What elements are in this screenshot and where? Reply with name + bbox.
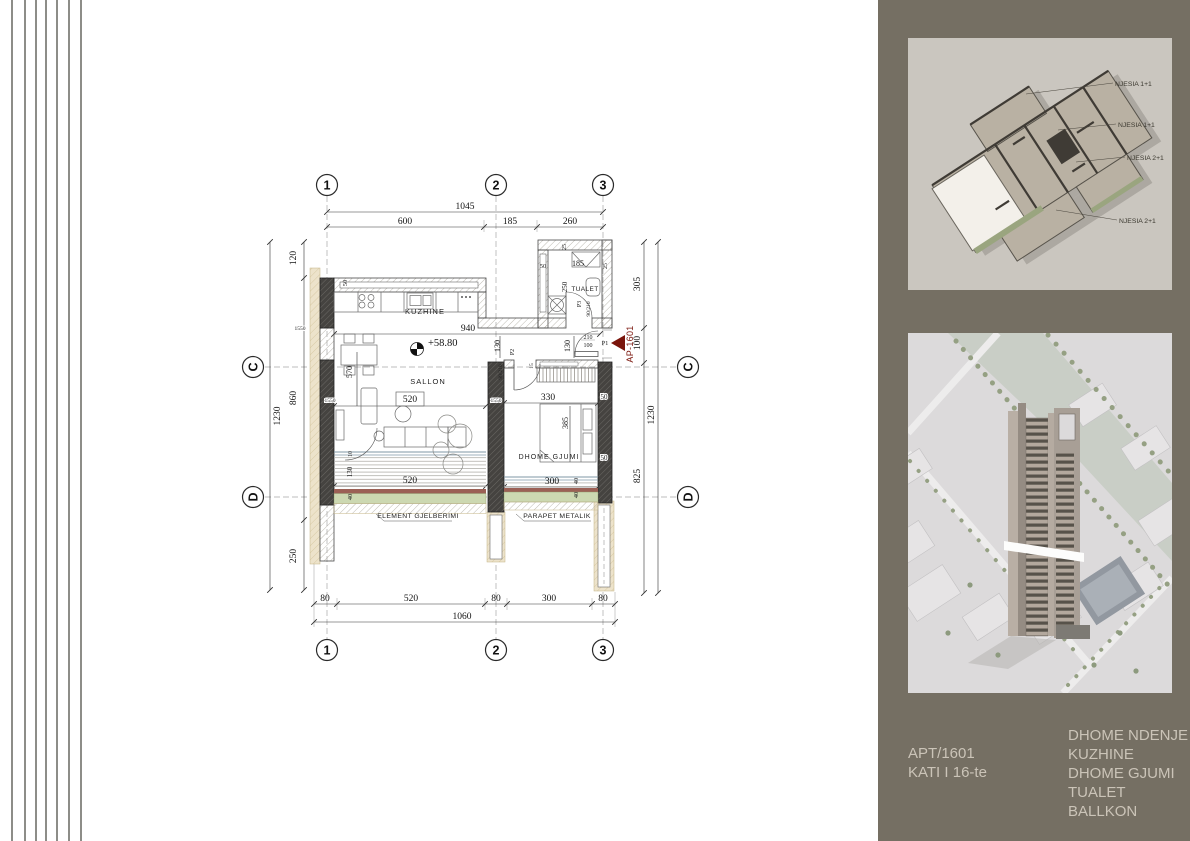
dim-label: 520 bbox=[404, 594, 419, 604]
tv-unit bbox=[336, 410, 344, 440]
dim-label: 1550 bbox=[325, 398, 336, 404]
wardrobe bbox=[537, 368, 595, 382]
furniture-bedroom bbox=[537, 368, 596, 462]
dim-label: 185 bbox=[503, 217, 518, 227]
room-label-toilet: TUALET bbox=[571, 286, 598, 293]
dim-label: 25 bbox=[562, 244, 568, 250]
room-list-item: DHOME GJUMI bbox=[1068, 764, 1188, 783]
decor-line bbox=[56, 0, 58, 841]
grid-bubble-3: 3 bbox=[600, 644, 607, 658]
dim-label: 570 bbox=[345, 366, 354, 378]
dim-label: 80 bbox=[598, 594, 608, 604]
dim-label: 300 bbox=[542, 594, 557, 604]
dim-label: 250 bbox=[289, 549, 299, 564]
room-list-item: TUALET bbox=[1068, 783, 1188, 802]
door-label: P1 bbox=[602, 340, 609, 347]
grid-bubble-c: C bbox=[682, 362, 696, 371]
socket-dots bbox=[461, 296, 471, 298]
greenery-strip bbox=[334, 494, 486, 504]
dim-label: 10 bbox=[348, 451, 354, 457]
apartment-marker-arrow-icon bbox=[611, 335, 625, 351]
dim-label: 1045 bbox=[456, 202, 475, 212]
greenery-strip bbox=[504, 492, 598, 502]
dim-label: 385 bbox=[561, 417, 570, 429]
decor-line bbox=[24, 0, 26, 841]
dim-label: 1230 bbox=[647, 405, 657, 424]
dim-label: 860 bbox=[289, 391, 299, 406]
floor-number: KATI I 16-te bbox=[908, 763, 987, 782]
door-spec: 210 bbox=[584, 335, 593, 341]
callouts: ELEMENT GJELBERIMI PARAPET METALIK bbox=[376, 513, 591, 521]
tower-render-image bbox=[908, 333, 1172, 693]
unit-label: NJESIA 1+1 bbox=[1115, 81, 1152, 88]
door-label: P2 bbox=[510, 349, 516, 355]
tower-crown-opening bbox=[1059, 414, 1075, 440]
dim-label: 1060 bbox=[453, 612, 472, 622]
grid-bubble-3: 3 bbox=[600, 179, 607, 193]
room-label-living: SALLON bbox=[410, 377, 446, 386]
dim-label: 50 bbox=[540, 263, 547, 270]
dim-label: 330 bbox=[541, 393, 556, 403]
dim-label: 40 bbox=[573, 478, 580, 485]
unit-label: NJESIA 1+1 bbox=[1118, 122, 1155, 129]
grid-bubble-1: 1 bbox=[324, 644, 331, 658]
dim-label: 940 bbox=[461, 324, 476, 334]
apartment-number: APT/1601 bbox=[908, 744, 987, 763]
decor-line bbox=[45, 0, 47, 841]
room-list-item: BALLKON bbox=[1068, 802, 1188, 821]
decor-line bbox=[35, 0, 37, 841]
dim-label: 185 bbox=[572, 259, 584, 268]
dim-label: 50 bbox=[342, 280, 349, 287]
unit-label: NJESIA 2+1 bbox=[1127, 155, 1164, 162]
dim-label: 130 bbox=[346, 466, 354, 477]
dim-label: 520 bbox=[403, 395, 418, 405]
dim-label: 260 bbox=[563, 217, 578, 227]
decor-line bbox=[11, 0, 13, 841]
grid-bubble-d: D bbox=[682, 492, 696, 501]
info-panel: NJESIA 1+1 NJESIA 1+1 NJESIA 2+1 NJESIA … bbox=[878, 0, 1190, 841]
dim-label: 25 bbox=[603, 263, 609, 269]
dimension-labels: 1045 600 185 260 80 520 80 300 80 1060 9… bbox=[295, 202, 609, 622]
coffee-table bbox=[395, 406, 411, 422]
dim-label: 120 bbox=[289, 251, 299, 266]
grid-bubble-c: C bbox=[247, 362, 261, 371]
dim-label: 100 bbox=[633, 336, 643, 351]
callout-greenery: ELEMENT GJELBERIMI bbox=[377, 513, 458, 520]
apartment-info: APT/1601 KATI I 16-te bbox=[908, 744, 987, 782]
level-marker: +58.80 bbox=[411, 338, 458, 356]
floor-plan-drawing: +58.80 AP-1601 KUZHINE SALLON DHOME GJUM… bbox=[238, 166, 708, 668]
dim-label: 130 bbox=[563, 340, 572, 352]
dim-label: 825 bbox=[633, 469, 643, 484]
side-table bbox=[374, 431, 384, 441]
parapet-strip bbox=[334, 489, 486, 494]
dim-label: 1550 bbox=[295, 326, 306, 332]
room-list: DHOME NDENJE KUZHINE DHOME GJUMI TUALET … bbox=[1068, 726, 1188, 821]
room-list-item: DHOME NDENJE bbox=[1068, 726, 1188, 745]
dim-label: 50 bbox=[601, 454, 609, 462]
door-spec: 90/210 bbox=[586, 301, 592, 317]
dim-label: 80 bbox=[320, 594, 330, 604]
dim-label: 600 bbox=[398, 217, 413, 227]
room-list-item: KUZHINE bbox=[1068, 745, 1188, 764]
level-label: +58.80 bbox=[428, 338, 458, 349]
dim-label: 520 bbox=[403, 476, 418, 486]
room-label-bedroom: DHOME GJUMI bbox=[519, 454, 580, 461]
dim-label: 250 bbox=[561, 281, 569, 292]
grid-bubble-1: 1 bbox=[324, 179, 331, 193]
dim-label: 50 bbox=[601, 393, 609, 401]
grid-bubble-2: 2 bbox=[493, 179, 500, 193]
dim-label: 300 bbox=[545, 477, 560, 487]
dim-label: 15 bbox=[529, 363, 535, 369]
decor-line bbox=[80, 0, 82, 841]
door-spec: 100 bbox=[584, 343, 593, 349]
callout-parapet: PARAPET METALIK bbox=[523, 513, 591, 520]
unit-label: NJESIA 2+1 bbox=[1119, 218, 1156, 225]
parapet-strip bbox=[504, 488, 598, 492]
washing-machine-icon bbox=[548, 296, 566, 314]
dim-label: 1230 bbox=[273, 406, 283, 425]
dim-label: 1550 bbox=[491, 398, 502, 404]
decor-line bbox=[68, 0, 70, 841]
kitchen-window bbox=[340, 282, 478, 288]
dim-label: 130 bbox=[493, 340, 502, 352]
dim-label: 305 bbox=[633, 277, 643, 292]
room-label-kitchen: KUZHINE bbox=[405, 307, 445, 316]
grid-bubble-2: 2 bbox=[493, 644, 500, 658]
door-label: P3 bbox=[577, 301, 583, 307]
grid-bubble-d: D bbox=[247, 492, 261, 501]
dim-label: 40 bbox=[347, 494, 354, 501]
axonometric-floor-image: NJESIA 1+1 NJESIA 1+1 NJESIA 2+1 NJESIA … bbox=[908, 38, 1172, 290]
stove-icon bbox=[359, 295, 374, 309]
dim-label: 80 bbox=[491, 594, 501, 604]
dim-label: 40 bbox=[573, 492, 580, 499]
door-spec: 90/210 bbox=[498, 364, 504, 380]
apartment-marker: AP-1601 bbox=[611, 325, 635, 362]
